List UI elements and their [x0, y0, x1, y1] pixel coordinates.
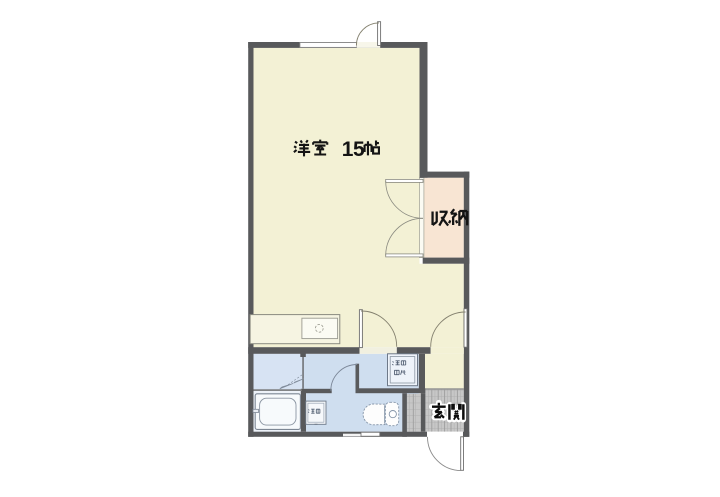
svg-text:15: 15: [342, 138, 365, 161]
